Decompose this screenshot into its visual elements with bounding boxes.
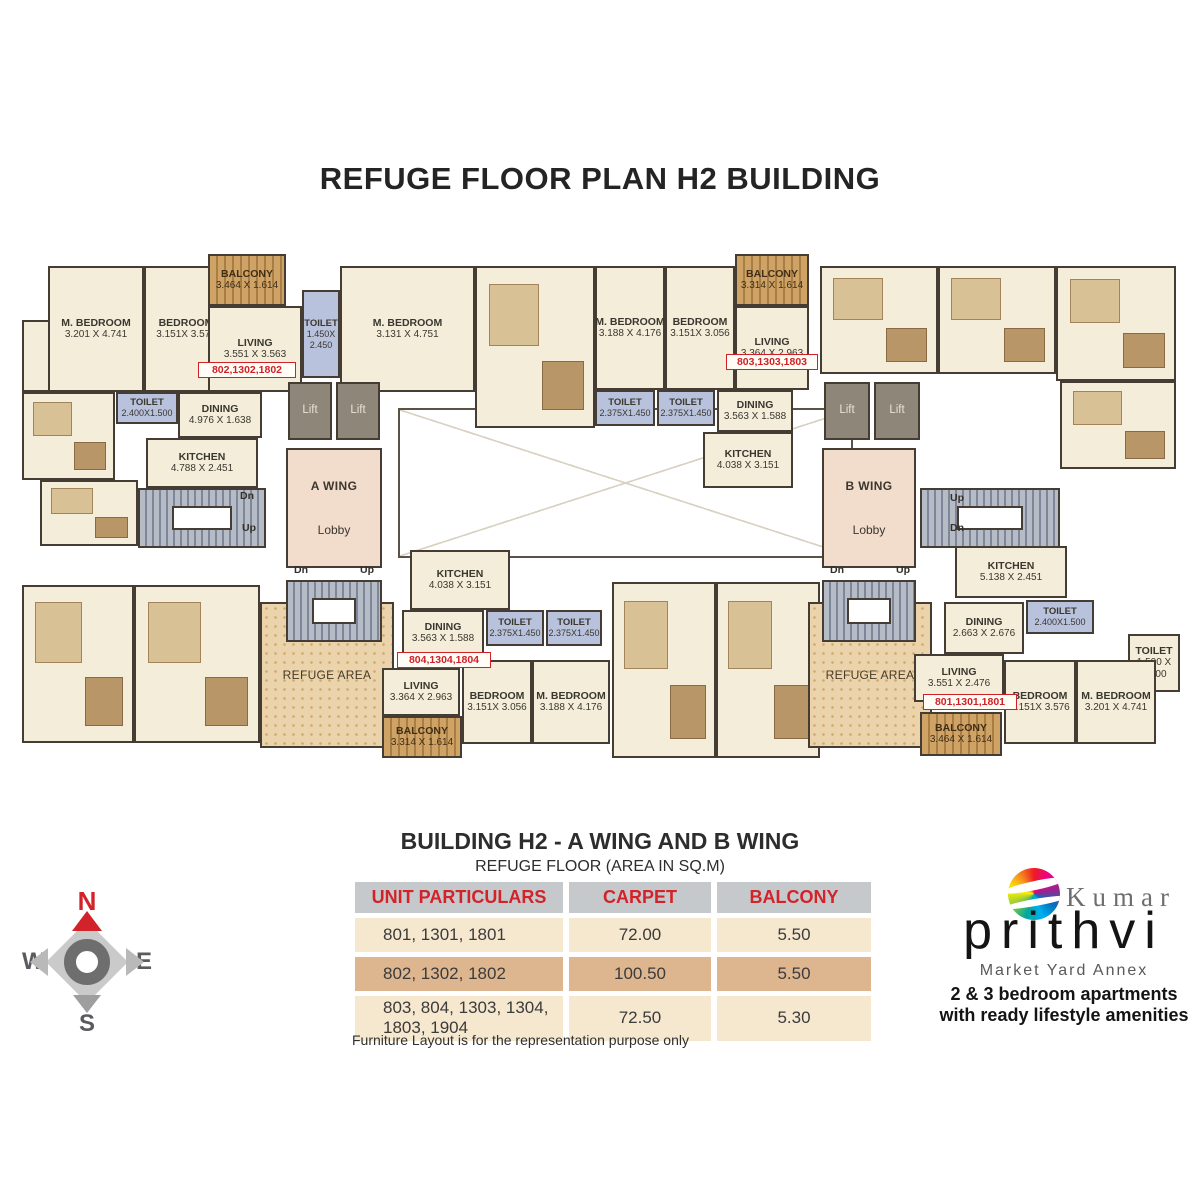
room-dimension: 3.151X 3.056 <box>467 702 527 714</box>
lobby-a-wing: A WINGLobby <box>286 448 382 568</box>
unit-tag-802: 802,1302,1802 <box>198 362 296 378</box>
compass-west-arrow-icon <box>30 948 48 976</box>
bedroom-803: BEDROOM3.151X 3.056 <box>665 266 735 390</box>
room-dimension: 2.400X1.500 <box>1034 617 1085 628</box>
block-bottom-left-2 <box>134 585 260 743</box>
living-803: LIVING3.364 X 2.963 <box>735 306 809 390</box>
room-label: BEDROOM <box>470 690 525 702</box>
compass-east-arrow-icon <box>126 948 144 976</box>
dining-803: DINING3.563 X 1.588 <box>717 390 793 432</box>
room-dimension: 2.400X1.500 <box>121 408 172 419</box>
m-bedroom-802-second: M. BEDROOM3.131 X 4.751 <box>340 266 475 392</box>
block-left-entry <box>22 392 115 480</box>
living-804: LIVING3.364 X 2.963 <box>382 668 460 716</box>
room-label: Lift <box>350 404 365 418</box>
block-top-right-2 <box>938 266 1056 374</box>
kitchen-803: KITCHEN4.038 X 3.151 <box>703 432 793 488</box>
room-dimension: 3.188 X 4.176 <box>540 702 602 714</box>
room-label: KITCHEN <box>179 451 226 463</box>
toilet-803-a: TOILET2.375X1.450 <box>595 390 655 426</box>
building-heading: BUILDING H2 - A WING AND B WING <box>250 828 950 855</box>
room-dimension: 3.151X 3.576 <box>156 329 216 341</box>
room-label: TOILET <box>130 397 164 408</box>
stair-direction-label: Dn <box>830 564 844 576</box>
room-label: Lift <box>302 404 317 418</box>
compass-south-arrow-icon <box>73 995 101 1013</box>
logo-tagline-2: with ready lifestyle amenities <box>938 1005 1190 1026</box>
area-table: UNIT PARTICULARSCARPETBALCONY 801, 1301,… <box>349 877 877 1046</box>
room-dimension: 4.038 X 3.151 <box>429 580 491 592</box>
unit-tag-801: 801,1301,1801 <box>923 694 1017 710</box>
room-label: BEDROOM <box>673 316 728 328</box>
living-802: LIVING3.551 X 3.563 <box>208 306 302 392</box>
room-label: M. BEDROOM <box>1081 690 1150 702</box>
area-table-header-row: UNIT PARTICULARSCARPETBALCONY <box>355 882 871 913</box>
balcony-803: BALCONY3.314 X 1.614 <box>735 254 809 306</box>
floor-plan: TOILET1.500 X2.400M. BEDROOM3.201 X 4.74… <box>20 250 1180 765</box>
room-dimension: 4.038 X 3.151 <box>717 460 779 472</box>
room-label: KITCHEN <box>437 568 484 580</box>
room-dimension: 4.976 X 1.638 <box>189 415 251 427</box>
logo-tagline-1: 2 & 3 bedroom apartments <box>938 984 1190 1005</box>
room-label: TOILET <box>669 397 703 408</box>
room-label: KITCHEN <box>725 448 772 460</box>
balcony-802: BALCONY3.464 X 1.614 <box>208 254 286 306</box>
room-dimension: 3.464 X 1.614 <box>930 734 992 746</box>
balcony-804: BALCONY3.314 X 1.614 <box>382 716 462 758</box>
kitchen-802: KITCHEN4.788 X 2.451 <box>146 438 258 488</box>
balcony-801: BALCONY3.464 X 1.614 <box>920 712 1002 756</box>
room-dimension: 3.201 X 4.741 <box>65 329 127 341</box>
stair-direction-label: Dn <box>240 490 254 502</box>
table-row: 802, 1302, 1802100.505.50 <box>355 957 871 991</box>
m-bedroom-801: M. BEDROOM3.201 X 4.741 <box>1076 660 1156 744</box>
compass-ring-icon <box>64 939 110 985</box>
room-label: DINING <box>202 403 239 415</box>
room-dimension: 1.450X <box>307 329 336 340</box>
room-label: TOILET <box>1043 606 1077 617</box>
cell-carpet: 100.50 <box>569 957 711 991</box>
lift-a-2: Lift <box>336 382 380 440</box>
table-row: 801, 1301, 180172.005.50 <box>355 918 871 952</box>
room-dimension: 3.151X 3.056 <box>670 328 730 340</box>
area-table-body: 801, 1301, 180172.005.50802, 1302, 18021… <box>355 918 871 1041</box>
toilet-803-b: TOILET2.375X1.450 <box>657 390 715 426</box>
room-dimension: 3.188 X 4.176 <box>599 328 661 340</box>
room-label: BALCONY <box>396 725 448 737</box>
m-bedroom-804: M. BEDROOM3.188 X 4.176 <box>532 660 610 744</box>
lift-b-2: Lift <box>874 382 920 440</box>
building-subheading: REFUGE FLOOR (AREA IN SQ.M) <box>250 858 950 876</box>
room-dimension: 2.375X1.450 <box>489 628 540 639</box>
furniture-disclaimer: Furniture Layout is for the representati… <box>352 1032 689 1048</box>
room-dimension: 3.563 X 1.588 <box>724 411 786 423</box>
cell-carpet: 72.00 <box>569 918 711 952</box>
block-bottom-center-1 <box>612 582 716 758</box>
lift-a-1: Lift <box>288 382 332 440</box>
room-dimension: 2.375X1.450 <box>599 408 650 419</box>
toilet-804-b: TOILET2.375X1.450 <box>546 610 602 646</box>
cell-balcony: 5.50 <box>717 918 871 952</box>
room-dimension: Lobby <box>853 523 886 537</box>
block-left-of-stair <box>40 480 138 546</box>
compass-north-arrow-icon <box>72 911 102 931</box>
lobby-b-wing: B WINGLobby <box>822 448 916 568</box>
room-dimension: 3.551 X 2.476 <box>928 678 990 690</box>
stair-b-mid <box>822 580 916 642</box>
room-label: DINING <box>737 399 774 411</box>
block-top-right-1 <box>820 266 938 374</box>
room-label: REFUGE AREA <box>283 668 372 682</box>
room-label: Lift <box>839 404 854 418</box>
room-dimension: 2.375X1.450 <box>548 628 599 639</box>
cell-units: 802, 1302, 1802 <box>355 957 563 991</box>
room-label: LIVING <box>237 337 272 349</box>
room-dimension: 3.131 X 4.751 <box>376 329 438 341</box>
room-label: DINING <box>966 616 1003 628</box>
cell-balcony: 5.50 <box>717 957 871 991</box>
room-label: A WING <box>311 479 358 493</box>
room-label: BALCONY <box>935 722 987 734</box>
stair-direction-label: Up <box>896 564 910 576</box>
stair-b-right <box>920 488 1060 548</box>
room-label: M. BEDROOM <box>373 317 442 329</box>
block-right-mid <box>1060 381 1176 469</box>
logo-brand: prithvi <box>938 902 1190 960</box>
room-label: BALCONY <box>221 268 273 280</box>
dining-802: DINING4.976 X 1.638 <box>178 392 262 438</box>
room-label: TOILET <box>498 617 532 628</box>
room-label: REFUGE AREA <box>826 668 915 682</box>
dining-801: DINING2.663 X 2.676 <box>944 602 1024 654</box>
cell-balcony: 5.30 <box>717 996 871 1041</box>
block-bottom-left-1 <box>22 585 134 743</box>
room-label: BALCONY <box>746 268 798 280</box>
page-title: REFUGE FLOOR PLAN H2 BUILDING <box>0 161 1200 197</box>
room-label: M. BEDROOM <box>536 690 605 702</box>
unit-tag-803: 803,1303,1803 <box>726 354 818 370</box>
block-bottom-center-2 <box>716 582 820 758</box>
room-label: LIVING <box>754 336 789 348</box>
column-header: BALCONY <box>717 882 871 913</box>
lift-b-1: Lift <box>824 382 870 440</box>
cell-units: 801, 1301, 1801 <box>355 918 563 952</box>
room-label: LIVING <box>941 666 976 678</box>
room-label: BEDROOM <box>159 317 214 329</box>
room-dimension: 3.464 X 1.614 <box>216 280 278 292</box>
block-top-center-left <box>475 266 595 428</box>
toilet-802-attached: TOILET1.450X2.450 <box>302 290 340 378</box>
room-label: DINING <box>425 621 462 633</box>
room-dimension: 3.314 X 1.614 <box>391 737 453 749</box>
unit-tag-804: 804,1304,1804 <box>397 652 491 668</box>
block-top-right-3 <box>1056 266 1176 381</box>
room-label: LIVING <box>403 680 438 692</box>
room-dimension: 3.314 X 1.614 <box>741 280 803 292</box>
developer-logo: Kumar prithvi Market Yard Annex 2 & 3 be… <box>938 860 1190 1032</box>
room-dimension: 3.551 X 3.563 <box>224 349 286 361</box>
room-label: BEDROOM <box>1013 690 1068 702</box>
room-label: B WING <box>845 479 892 493</box>
room-dimension: 4.788 X 2.451 <box>171 463 233 475</box>
toilet-804-a: TOILET2.375X1.450 <box>486 610 544 646</box>
m-bedroom-802: M. BEDROOM3.201 X 4.741 <box>48 266 144 392</box>
room-label: TOILET <box>557 617 591 628</box>
room-dimension: 3.563 X 1.588 <box>412 633 474 645</box>
stair-direction-label: Up <box>950 492 964 504</box>
stair-direction-label: Dn <box>294 564 308 576</box>
room-dimension: 2.450 <box>310 340 333 351</box>
room-label: M. BEDROOM <box>61 317 130 329</box>
room-dimension: 5.138 X 2.451 <box>980 572 1042 584</box>
room-dimension: 3.364 X 2.963 <box>390 692 452 704</box>
room-label: TOILET <box>608 397 642 408</box>
stair-direction-label: Dn <box>950 522 964 534</box>
room-dimension: 3.201 X 4.741 <box>1085 702 1147 714</box>
room-label: KITCHEN <box>988 560 1035 572</box>
room-label: TOILET <box>1135 645 1172 657</box>
stair-direction-label: Up <box>242 522 256 534</box>
kitchen-804: KITCHEN4.038 X 3.151 <box>410 550 510 610</box>
room-dimension: Lobby <box>318 523 351 537</box>
logo-location: Market Yard Annex <box>938 962 1190 980</box>
room-label: M. BEDROOM <box>595 316 664 328</box>
column-header: CARPET <box>569 882 711 913</box>
room-dimension: 2.375X1.450 <box>660 408 711 419</box>
room-dimension: 3.151X 3.576 <box>1010 702 1070 714</box>
m-bedroom-803: M. BEDROOM3.188 X 4.176 <box>595 266 665 390</box>
column-header: UNIT PARTICULARS <box>355 882 563 913</box>
kitchen-801: KITCHEN5.138 X 2.451 <box>955 546 1067 598</box>
stair-direction-label: Up <box>360 564 374 576</box>
compass-rose: N S W E <box>22 886 152 1038</box>
bedroom-804: BEDROOM3.151X 3.056 <box>462 660 532 744</box>
room-label: TOILET <box>304 318 338 329</box>
dining-804: DINING3.563 X 1.588 <box>402 610 484 656</box>
compass-south-label: S <box>79 1010 95 1038</box>
room-label: Lift <box>889 404 904 418</box>
toilet-802-common: TOILET2.400X1.500 <box>116 392 178 424</box>
toilet-801-common: TOILET2.400X1.500 <box>1026 600 1094 634</box>
room-dimension: 2.663 X 2.676 <box>953 628 1015 640</box>
stair-a-mid <box>286 580 382 642</box>
